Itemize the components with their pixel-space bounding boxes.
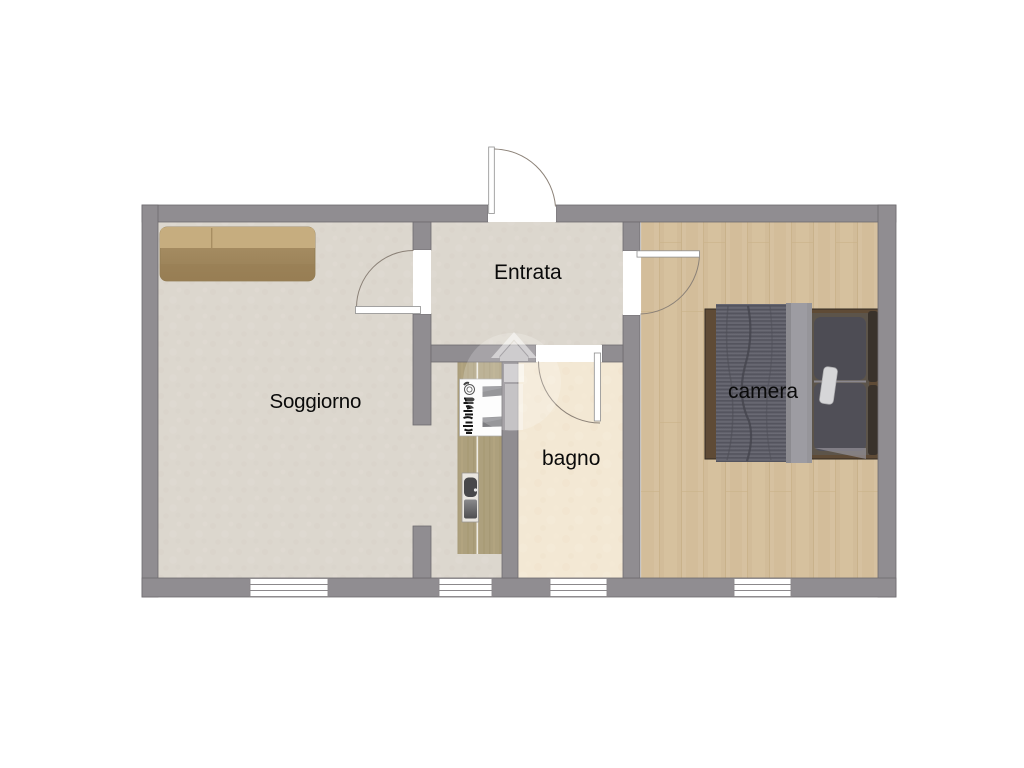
svg-text:camera: camera (728, 380, 798, 403)
svg-text:bagno: bagno (542, 447, 600, 470)
svg-text:Soggiorno: Soggiorno (270, 390, 362, 413)
svg-text:Entrata: Entrata (494, 261, 562, 284)
